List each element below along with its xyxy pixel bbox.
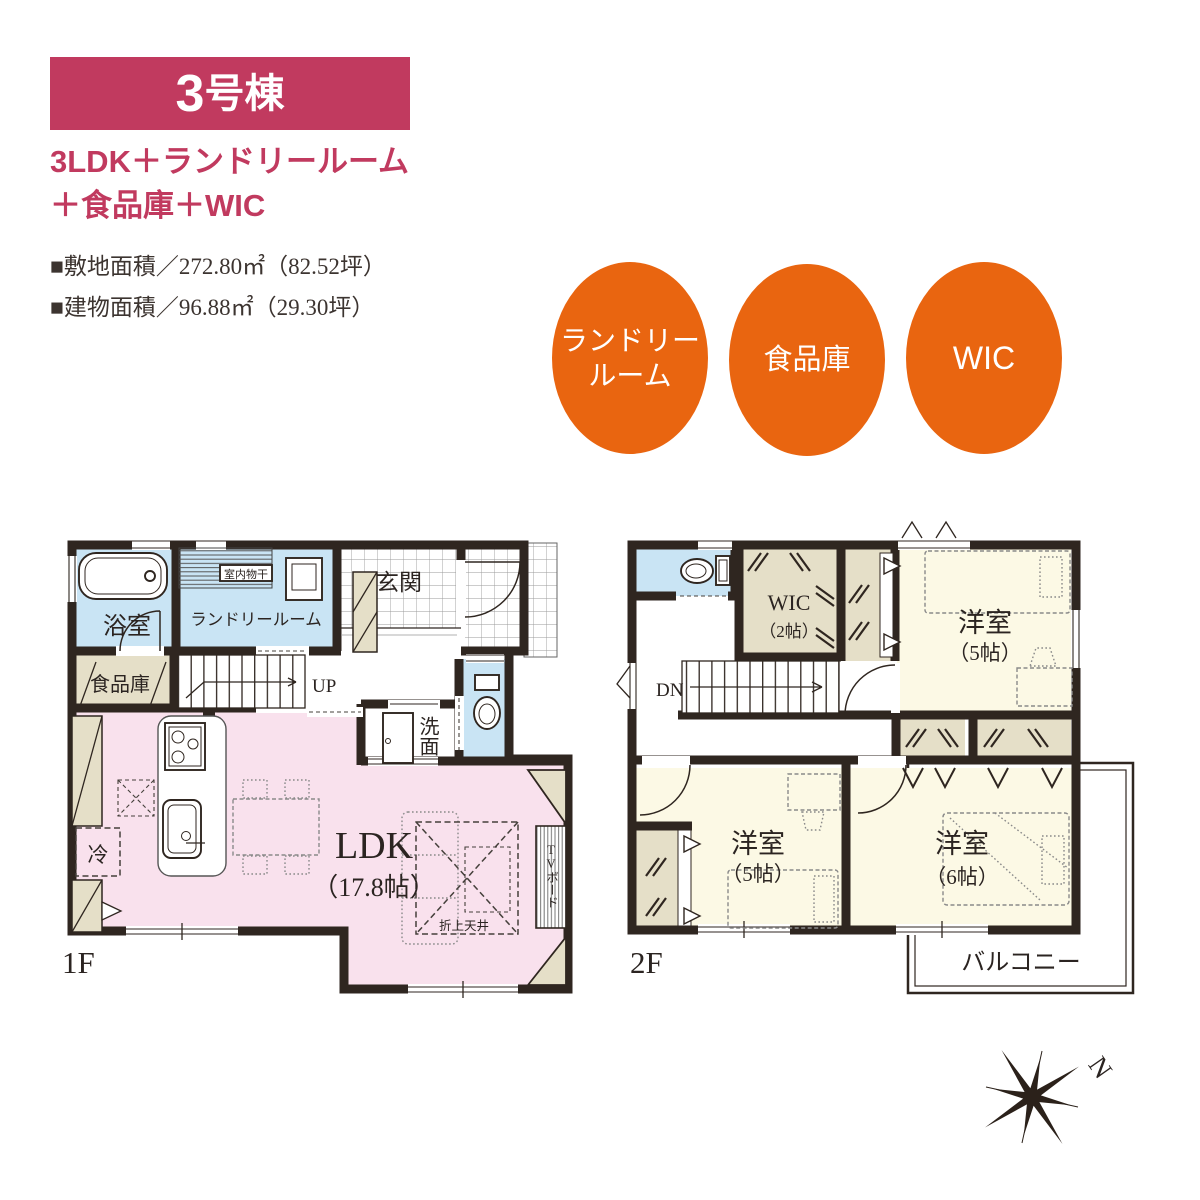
porch-outer-step bbox=[524, 543, 557, 657]
indoor-drying-label: 室内物干 bbox=[224, 567, 268, 581]
floorplan-drawing: 浴室 ランドリールーム 室内物干 玄関 食品庫 UP 洗面 LDK （17.8帖… bbox=[0, 0, 1200, 1200]
stairs-dn-label: DN bbox=[656, 680, 684, 701]
coffered-ceiling-label: 折上天井 bbox=[439, 918, 489, 933]
floorplan-flyer: 3 号棟 3LDK＋ランドリールーム ＋食品庫＋WIC ■敷地面積／272.80… bbox=[0, 0, 1200, 1200]
bedroom-b-size: （5帖） bbox=[721, 862, 795, 886]
wic-label: WIC bbox=[768, 590, 811, 615]
washbasin bbox=[383, 713, 413, 763]
ldk-size-label: （17.8帖） bbox=[312, 873, 436, 902]
closet-small-1 bbox=[900, 719, 965, 760]
floor1-label: 1F bbox=[62, 945, 95, 980]
stove bbox=[165, 723, 205, 770]
floor2-plan: WIC （2帖） DN 洋室 （5帖） 洋室 （5帖） 洋室 （6帖） バルコニ… bbox=[617, 522, 1133, 993]
bath-label: 浴室 bbox=[103, 613, 151, 640]
toilet-tank-1f bbox=[475, 675, 499, 690]
entrance-label: 玄関 bbox=[376, 570, 422, 595]
bedroom-c-label: 洋室 bbox=[935, 829, 989, 859]
stairs-up-label: UP bbox=[312, 676, 336, 697]
casement-window-marks bbox=[902, 522, 956, 538]
bedroom-c-size: （6帖） bbox=[925, 865, 999, 889]
closet-small-2 bbox=[977, 719, 1071, 760]
laundry-label: ランドリールーム bbox=[190, 610, 322, 629]
floor2-label: 2F bbox=[630, 945, 663, 980]
bedroom-a-size: （5帖） bbox=[948, 641, 1022, 665]
wic-size-label: （2帖） bbox=[759, 622, 819, 641]
tv-board-label: TVボード bbox=[544, 843, 558, 909]
porch-tiles bbox=[465, 545, 524, 651]
bedroom-a-label: 洋室 bbox=[958, 608, 1012, 638]
compass-north-label: N bbox=[1083, 1051, 1119, 1084]
pantry-label: 食品庫 bbox=[90, 673, 150, 696]
floor1-plan: 浴室 ランドリールーム 室内物干 玄関 食品庫 UP 洗面 LDK （17.8帖… bbox=[62, 539, 568, 998]
bedroom-b-label: 洋室 bbox=[731, 829, 785, 859]
shoe-cabinet bbox=[353, 572, 377, 652]
bedroom-a-door-arc bbox=[845, 665, 895, 715]
bathtub-drain bbox=[145, 571, 155, 581]
fridge-label: 冷 bbox=[88, 843, 109, 867]
ldk-label: LDK bbox=[335, 825, 414, 867]
balcony-label: バルコニー bbox=[961, 950, 1081, 976]
washroom-label: 洗面 bbox=[416, 716, 439, 756]
compass-rose: N bbox=[985, 1050, 1118, 1144]
